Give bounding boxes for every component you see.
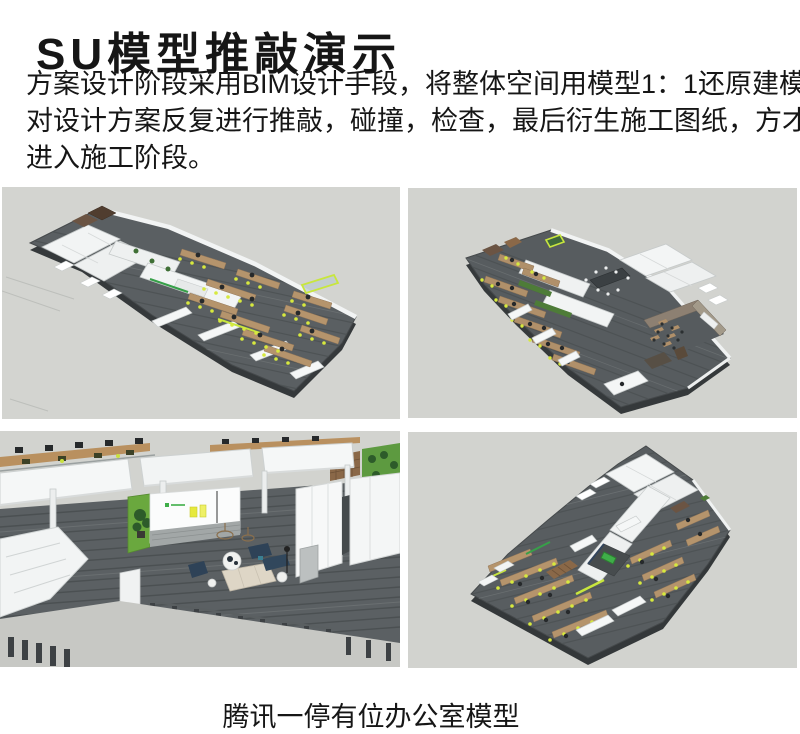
model-image-aerial-bottom [408,432,797,668]
intro-line-2: 对设计方案反复进行推敲，碰撞，检查，最后衍生施工图纸，方才 [26,103,800,140]
aerial-model-illustration-1 [2,187,400,419]
page: { "header": { "title": "SU模型推敲演示" }, "in… [0,0,800,727]
intro-line-3: 进入施工阶段。 [26,140,800,177]
model-image-interior-reception [0,431,400,667]
intro-line-1: 方案设计阶段采用BIM设计手段，将整体空间用模型1：1还原建模， [26,66,800,103]
aerial-model-illustration-2 [408,188,797,418]
figure-caption: 腾讯一停有位办公室模型 [0,695,742,734]
model-image-aerial-right [408,188,797,418]
aerial-model-illustration-3 [408,432,797,668]
interior-model-illustration [0,431,400,667]
model-image-aerial-left [2,187,400,419]
intro-paragraph: 方案设计阶段采用BIM设计手段，将整体空间用模型1：1还原建模， 对设计方案反复… [26,66,800,177]
